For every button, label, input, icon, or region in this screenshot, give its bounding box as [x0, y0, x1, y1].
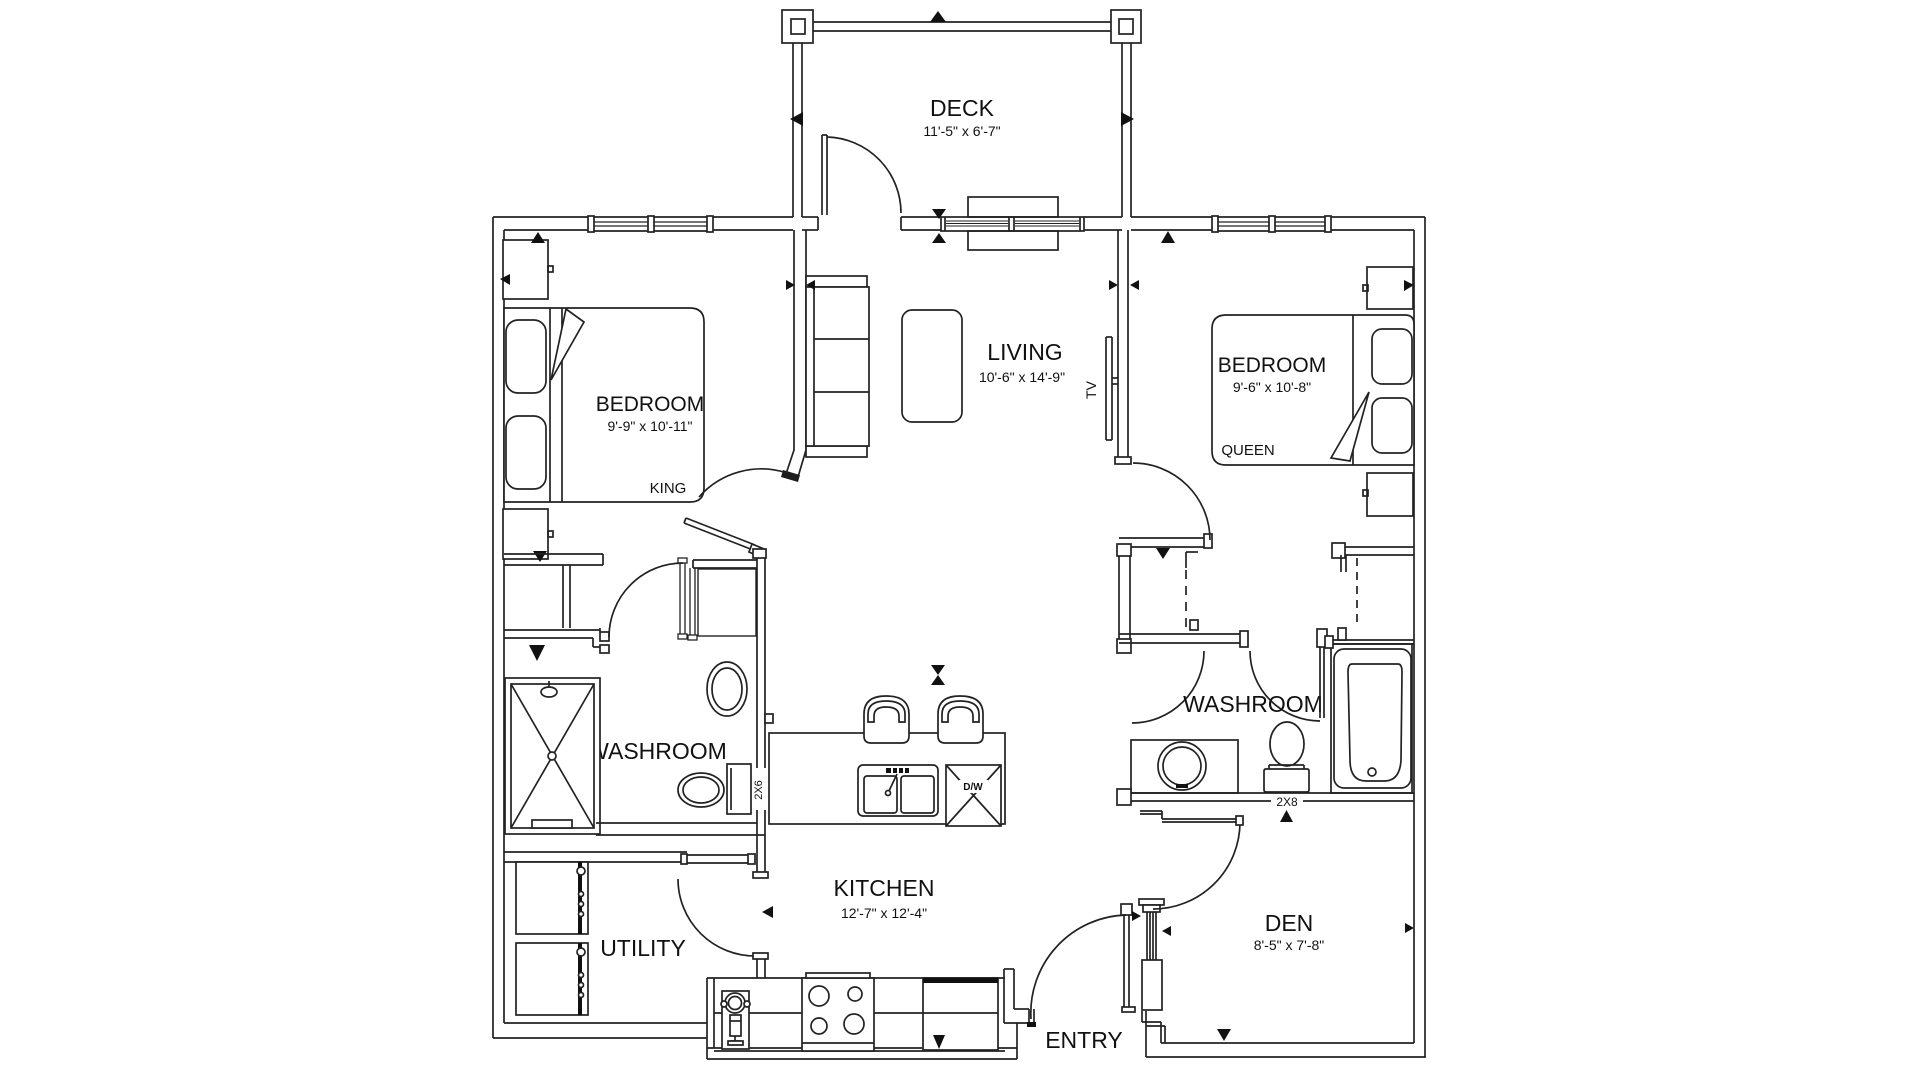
svg-text:2X6: 2X6: [753, 780, 765, 800]
svg-text:ENTRY: ENTRY: [1045, 1027, 1123, 1053]
svg-text:KITCHEN: KITCHEN: [834, 875, 935, 901]
svg-text:WASHROOM: WASHROOM: [587, 738, 727, 764]
svg-text:D/W: D/W: [963, 782, 983, 793]
svg-text:10'-6" x 14'-9": 10'-6" x 14'-9": [979, 369, 1065, 385]
svg-text:UTILITY: UTILITY: [600, 935, 686, 961]
svg-text:2X8: 2X8: [1276, 795, 1298, 809]
svg-text:12'-7" x 12'-4": 12'-7" x 12'-4": [841, 905, 927, 921]
svg-text:WASHROOM: WASHROOM: [1183, 691, 1323, 717]
svg-text:11'-5" x 6'-7": 11'-5" x 6'-7": [923, 123, 1000, 139]
svg-text:BEDROOM: BEDROOM: [596, 393, 705, 416]
svg-text:QUEEN: QUEEN: [1221, 442, 1274, 459]
svg-text:DECK: DECK: [930, 95, 995, 121]
svg-text:BEDROOM: BEDROOM: [1218, 354, 1327, 377]
svg-text:8'-5" x 7'-8": 8'-5" x 7'-8": [1254, 937, 1325, 953]
svg-text:9'-6" x 10'-8": 9'-6" x 10'-8": [1233, 379, 1311, 395]
svg-text:TV: TV: [1083, 380, 1099, 399]
svg-text:9'-9" x 10'-11": 9'-9" x 10'-11": [607, 418, 692, 434]
svg-text:LIVING: LIVING: [987, 339, 1062, 365]
svg-text:KING: KING: [650, 480, 687, 497]
svg-text:DEN: DEN: [1265, 910, 1314, 936]
